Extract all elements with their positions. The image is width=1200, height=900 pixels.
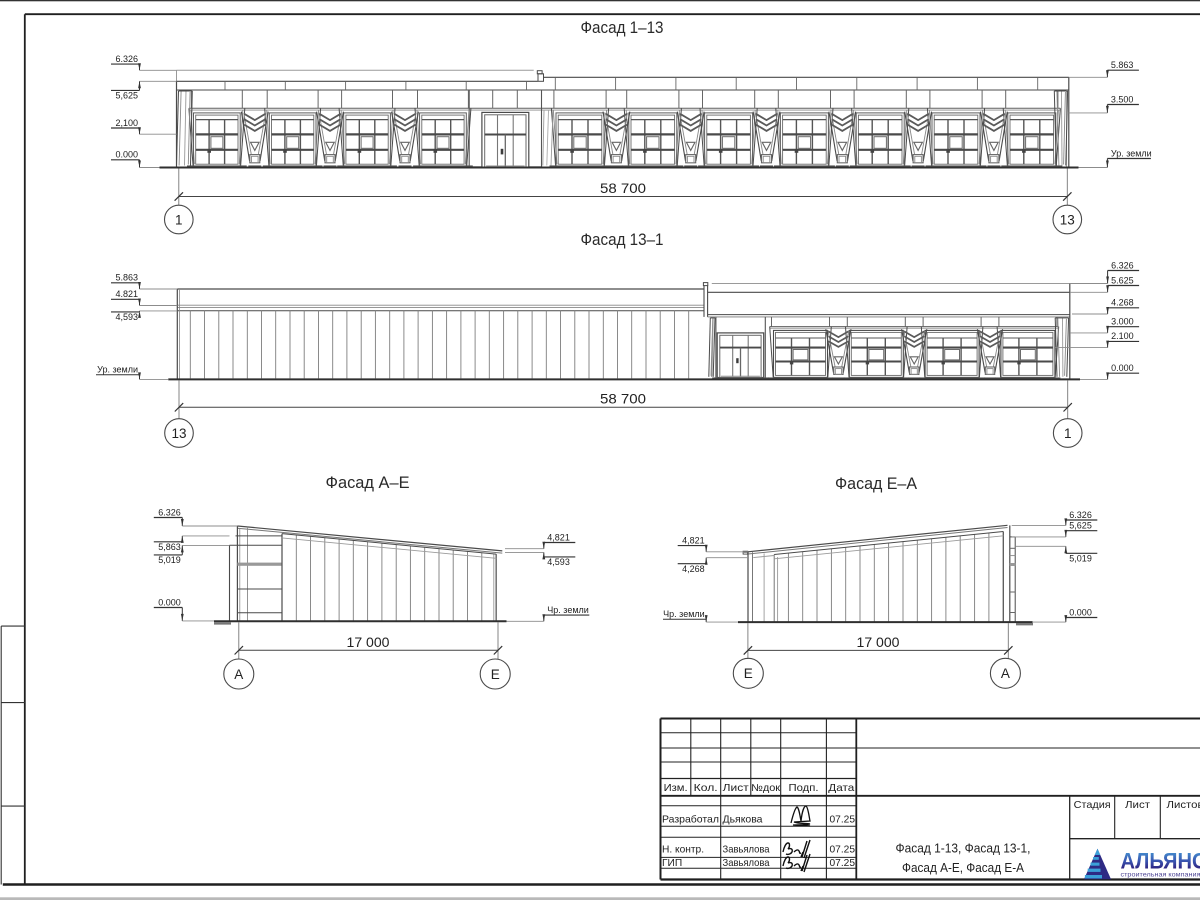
svg-text:Фасад 1-13, Фасад 13-1,: Фасад 1-13, Фасад 13-1, [896,842,1031,856]
svg-text:0.000: 0.000 [158,597,181,607]
svg-text:07.25: 07.25 [830,815,856,826]
svg-text:5.863: 5.863 [115,273,138,283]
svg-text:4,593: 4,593 [115,312,138,322]
svg-text:6.326: 6.326 [158,507,181,517]
svg-text:Фасад А-Е, Фасад Е-А: Фасад А-Е, Фасад Е-А [902,861,1025,875]
svg-text:№док: №док [751,783,781,794]
svg-text:4.268: 4.268 [1111,298,1134,308]
svg-text:Лист: Лист [1125,800,1150,811]
svg-text:Н. контр.: Н. контр. [662,845,704,856]
svg-text:Завьялова: Завьялова [723,858,770,869]
svg-text:Подп.: Подп. [789,783,819,794]
svg-text:2,100: 2,100 [115,118,138,128]
svg-text:2.100: 2.100 [1111,331,1134,341]
svg-text:5,625: 5,625 [115,91,138,101]
svg-text:4.821: 4.821 [115,289,138,299]
svg-text:Дата: Дата [828,783,854,794]
svg-text:Завьялова: Завьялова [723,845,770,856]
svg-text:1: 1 [175,212,183,227]
svg-text:4,821: 4,821 [682,535,705,545]
svg-text:Ур. земли: Ур. земли [97,365,138,375]
svg-text:А: А [234,667,243,682]
svg-text:Ур. земли: Ур. земли [1111,148,1152,158]
svg-text:0.000: 0.000 [1111,363,1134,373]
svg-text:4,821: 4,821 [547,532,570,542]
svg-text:Лист: Лист [723,783,749,794]
svg-text:5,625: 5,625 [1069,521,1092,531]
svg-text:строительная компания: строительная компания [1121,871,1200,878]
svg-text:Фасад Е–А: Фасад Е–А [835,475,917,493]
svg-text:0.000: 0.000 [1069,607,1092,617]
svg-text:Фасад 13–1: Фасад 13–1 [581,231,664,249]
svg-text:6.326: 6.326 [1069,510,1092,520]
svg-text:17 000: 17 000 [857,634,900,650]
svg-text:4,593: 4,593 [547,557,570,567]
svg-text:5,019: 5,019 [158,555,181,565]
svg-text:07.25: 07.25 [830,845,856,856]
svg-text:5.625: 5.625 [1111,275,1134,285]
svg-text:58 700: 58 700 [600,391,646,407]
svg-text:Листов: Листов [1167,800,1200,811]
svg-text:Е: Е [491,667,500,682]
svg-text:4,268: 4,268 [682,564,705,574]
svg-text:58 700: 58 700 [600,180,646,196]
svg-text:0.000: 0.000 [115,150,138,160]
svg-text:Изм.: Изм. [664,783,688,794]
svg-text:Кол.: Кол. [694,783,718,794]
svg-text:АЛЬЯНС: АЛЬЯНС [1121,849,1200,874]
svg-text:Дьякова: Дьякова [723,815,763,826]
svg-text:А: А [1001,666,1010,681]
svg-text:Е: Е [744,666,753,681]
svg-text:ГИП: ГИП [662,858,682,869]
svg-text:5.863: 5.863 [1111,60,1134,70]
svg-text:13: 13 [171,426,186,441]
svg-text:07.25: 07.25 [830,858,856,869]
svg-text:5,019: 5,019 [1069,554,1092,564]
svg-text:3.000: 3.000 [1111,317,1134,327]
svg-text:Разработал: Разработал [662,814,719,826]
svg-text:Фасад 1–13: Фасад 1–13 [581,19,664,37]
svg-text:3.500: 3.500 [1111,94,1134,104]
svg-text:Стадия: Стадия [1074,800,1111,811]
svg-text:13: 13 [1060,212,1075,227]
svg-text:6.326: 6.326 [115,54,138,64]
svg-text:6.326: 6.326 [1111,260,1134,270]
svg-text:17 000: 17 000 [347,634,390,650]
svg-text:Чр. земли: Чр. земли [663,609,705,619]
svg-text:1: 1 [1064,426,1072,441]
svg-text:Фасад А–Е: Фасад А–Е [326,474,410,492]
svg-text:Чр. земли: Чр. земли [547,605,589,615]
svg-text:5,863: 5,863 [158,542,181,552]
